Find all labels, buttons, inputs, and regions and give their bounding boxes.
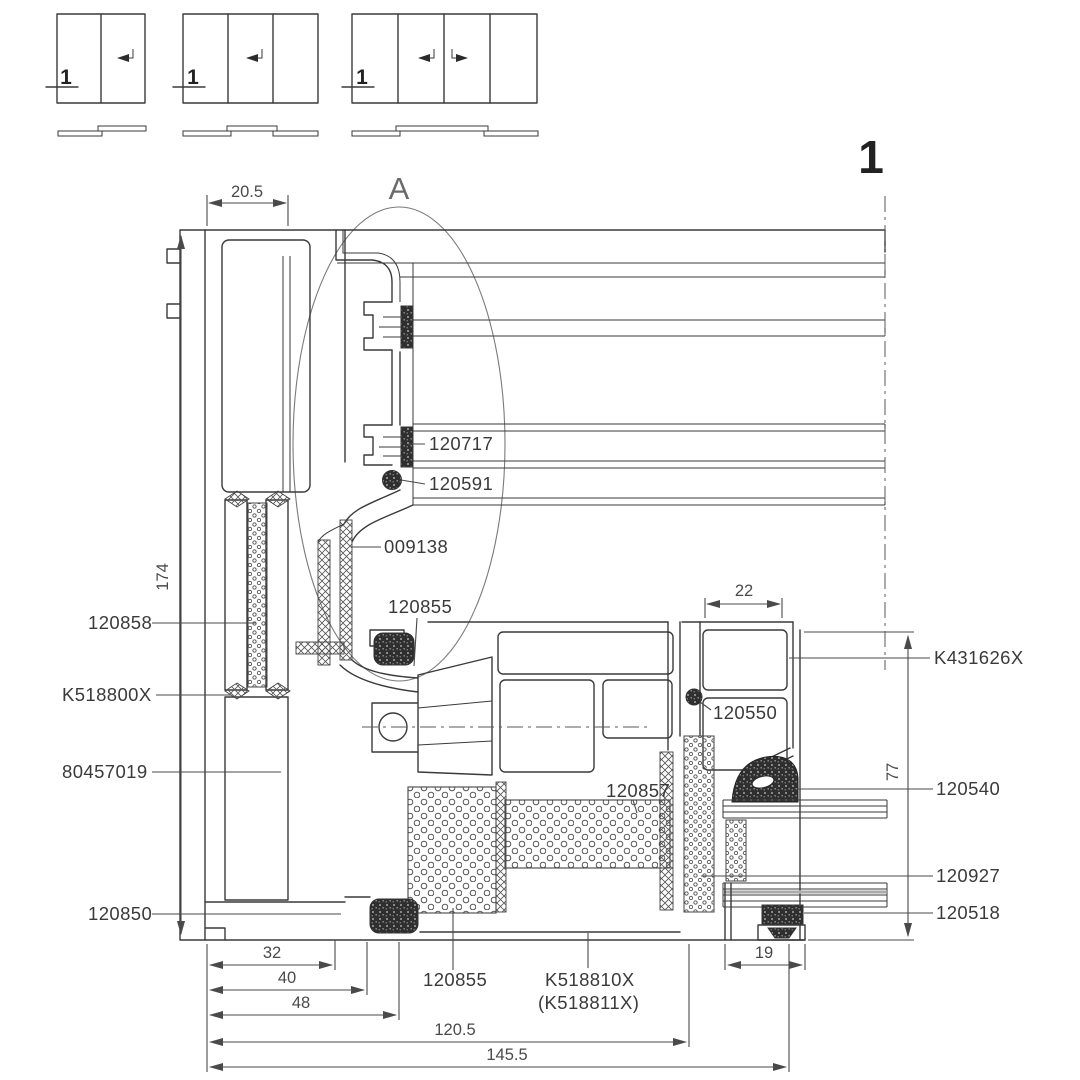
dim-20-5: 20.5 [231,183,263,201]
cut-label-3: 1 [356,66,368,89]
chamber-K431626X [703,630,787,690]
glazing-spacer-bar [726,820,746,881]
roller-carriage [418,657,492,775]
dim-40: 40 [278,969,296,987]
glazing-gasket [401,306,413,348]
config-schematics [46,14,538,136]
label-K431626X: K431626X [934,647,1024,668]
foam-insulation-block [408,787,496,913]
foam-insulation-120857 [505,800,670,868]
label-120855-top: 120855 [388,596,452,617]
label-009138: 009138 [384,536,448,557]
label-120540: 120540 [936,778,1000,799]
gasket-diamond [266,491,290,507]
dim-77: 77 [884,763,902,781]
label-80457019: 80457019 [62,761,148,782]
insulation-strip [296,642,344,654]
sliding-panel-glass-lines [337,263,885,505]
insulation-strip [660,752,673,910]
gasket-120855-upper [374,633,414,665]
dim-174: 174 [154,563,172,591]
sheet-number: 1 [858,131,884,183]
gasket-diamond [225,491,249,507]
fixed-glazing-unit [723,800,887,940]
label-120518: 120518 [936,902,1000,923]
dim-32: 32 [263,944,281,962]
label-120855-bottom: 120855 [423,969,487,990]
plan-view-two-panel [58,126,146,136]
dim-120-5: 120.5 [434,1021,475,1039]
slide-direction-arrow [247,49,262,58]
cut-label-1: 1 [60,66,72,89]
label-K518800X: K518800X [62,684,152,705]
gasket-120591 [383,471,402,490]
dim-19: 19 [755,944,773,962]
gasket-120850 [370,899,418,933]
label-120591: 120591 [429,473,493,494]
main-cross-section [167,196,887,940]
insulation-strip [496,782,506,912]
gasket-120550 [686,689,702,705]
sash-bottom-rail [345,622,680,933]
label-120717: 120717 [429,433,493,454]
dim-145-5: 145.5 [486,1046,527,1064]
label-K518810X: K518810X [545,969,635,990]
dim-48: 48 [292,994,310,1012]
label-120550: 120550 [713,702,777,723]
thermal-break-strip [248,503,267,687]
section-drawing-svg: 1 A 1 1 1 120717 120591 009138 120855 12… [0,0,1080,1080]
slide-direction-arrow-right [452,49,467,58]
label-120927: 120927 [936,865,1000,886]
sliding-sash-profile [296,230,492,775]
gasket-120717 [401,427,413,467]
label-120857: 120857 [606,780,670,801]
label-K518811X: (K518811X) [538,992,639,1013]
interlock-stile [225,491,290,699]
insulation-strip-009138 [340,520,352,660]
label-120850: 120850 [88,903,152,924]
clamp-gasket-120927 [768,928,796,938]
drawing-sheet: 1 A 1 1 1 120717 120591 009138 120855 12… [0,0,1080,1080]
plan-view-four-panel [352,126,538,136]
detail-marker-A: A [389,171,410,206]
perforated-insulation-strip [684,736,714,912]
cut-label-2: 1 [187,66,199,89]
dim-22: 22 [735,582,753,600]
plan-view-three-panel [183,126,318,136]
label-120858: 120858 [88,612,152,633]
schematic-four-panel [342,14,538,136]
seal-block-120518 [762,905,803,925]
slide-direction-arrow [118,49,133,58]
slide-direction-arrow-left [419,49,434,58]
